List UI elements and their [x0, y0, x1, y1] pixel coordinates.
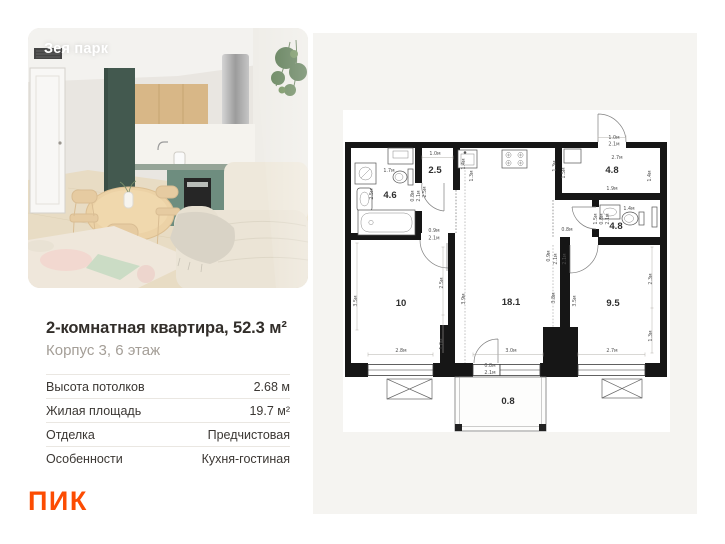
spec-row: Высота потолков2.68 м — [46, 374, 290, 398]
photo-backsplash — [135, 124, 255, 166]
spec-value: 19.7 м² — [249, 404, 290, 418]
dimension-label: 1.4м — [623, 206, 635, 212]
spec-row: Жилая площадь19.7 м² — [46, 398, 290, 422]
dimension-label: 1.0м — [608, 135, 620, 141]
floor-plan: 4.62.54.84.81018.19.50.8 1.0м1.7м1.0м2.1… — [313, 33, 697, 514]
dimension-label: 1.4м — [461, 158, 467, 170]
shelf-icon — [388, 148, 413, 164]
room-area-label-bathroom: 4.6 — [383, 190, 396, 201]
dimension-label: 2.5м — [422, 186, 428, 198]
room-area-label-bedroom: 10 — [396, 298, 407, 309]
dimension-label: 1.3м — [648, 330, 654, 342]
spec-row: ОтделкаПредчистовая — [46, 422, 290, 446]
spec-label: Высота потолков — [46, 380, 145, 394]
dimension-label: 3.8м — [551, 292, 557, 304]
toilet-2-tank-icon — [639, 212, 644, 225]
spec-value: 2.68 м — [254, 380, 290, 394]
dimension-label: 2.7м — [611, 155, 623, 161]
specs-table: Высота потолков2.68 мЖилая площадь19.7 м… — [46, 374, 290, 470]
dimension-label: 2.1м — [562, 253, 568, 265]
stove-icon — [502, 150, 527, 168]
dimension-label: 1.4м — [647, 170, 653, 182]
listing-card: Зея парк 2-комнатная квартира, 52.3 м² К… — [0, 0, 725, 544]
dimension-label: 1.0м — [439, 338, 445, 350]
photo-tall-cabinet — [104, 68, 135, 200]
dimension-label: 3.5м — [572, 295, 578, 307]
spec-label: Жилая площадь — [46, 404, 141, 418]
floor-plan-panel: 4.62.54.84.81018.19.50.8 1.0м1.7м1.0м2.1… — [313, 33, 697, 514]
dimension-label: 0.9м — [428, 228, 440, 234]
dimension-label: 0.8м — [484, 363, 496, 369]
listing-title: 2-комнатная квартира, 52.3 м² — [46, 319, 287, 338]
dimension-label: 3.9м — [461, 293, 467, 305]
dimension-label: 1.7м — [383, 168, 395, 174]
dimension-label: 2.1м — [428, 236, 440, 242]
dimension-label: 2.5м — [369, 188, 375, 200]
listing-subtitle: Корпус 3, 6 этаж — [46, 342, 160, 359]
dimension-label: 0.8м — [561, 227, 573, 233]
photo-hood — [222, 54, 249, 126]
toilet-tank-icon — [408, 169, 413, 185]
room-area-label-hallway: 2.5 — [428, 165, 442, 176]
dimension-label: 2.5м — [439, 277, 445, 289]
dimension-label: 1.3м — [552, 160, 558, 172]
dimension-label: 1.5м — [561, 167, 567, 179]
room-area-label-entry-hall: 4.8 — [605, 165, 618, 176]
room-area-label-bedroom-2: 9.5 — [606, 298, 620, 309]
dimension-label: 0.9м — [546, 250, 552, 262]
dimension-label: 2.1м — [553, 253, 559, 265]
hall-cabinet-icon — [564, 149, 581, 163]
photo-upper-cabinets — [135, 84, 208, 124]
dimension-label: 3.0м — [505, 348, 517, 354]
dimension-label: 2.1м — [416, 190, 422, 202]
dimension-label: 3.5м — [353, 295, 359, 307]
dimension-label: 2.1м — [608, 142, 620, 148]
dimension-label: 2.1м — [605, 213, 611, 225]
dimension-label: 1.3м — [469, 170, 475, 182]
dimension-label: 0.8м — [599, 213, 605, 225]
room-area-label-balcony: 0.8 — [501, 396, 514, 407]
spec-value: Кухня-гостиная — [202, 452, 290, 466]
spec-label: Отделка — [46, 428, 95, 442]
dimension-label: 1.9м — [606, 186, 618, 192]
apartment-photo-art — [28, 28, 308, 288]
spec-value: Предчистовая — [208, 428, 290, 442]
room-area-label-living-kitchen: 18.1 — [502, 297, 521, 308]
dimension-label: 2.1м — [484, 370, 496, 376]
dimension-label: 1.0м — [429, 151, 441, 157]
spec-label: Особенности — [46, 452, 123, 466]
spec-row: ОсобенностиКухня-гостиная — [46, 446, 290, 470]
photo-door — [30, 68, 65, 213]
dimension-label: 2.3м — [648, 273, 654, 285]
bathtub-icon — [358, 210, 415, 235]
project-name-overlay: Зея парк — [44, 41, 108, 57]
dimension-label: 2.8м — [395, 348, 407, 354]
dimension-label: 0.8м — [410, 190, 416, 202]
dimension-label: 1.5м — [593, 213, 599, 225]
towel-rail-icon — [652, 207, 657, 227]
dimension-label: 2.7м — [606, 348, 618, 354]
apartment-photo: Зея парк — [28, 28, 308, 288]
windows — [368, 365, 645, 376]
pik-logo: ПИК — [28, 486, 88, 517]
room-area-label-bathroom-2: 4.8 — [609, 221, 622, 232]
